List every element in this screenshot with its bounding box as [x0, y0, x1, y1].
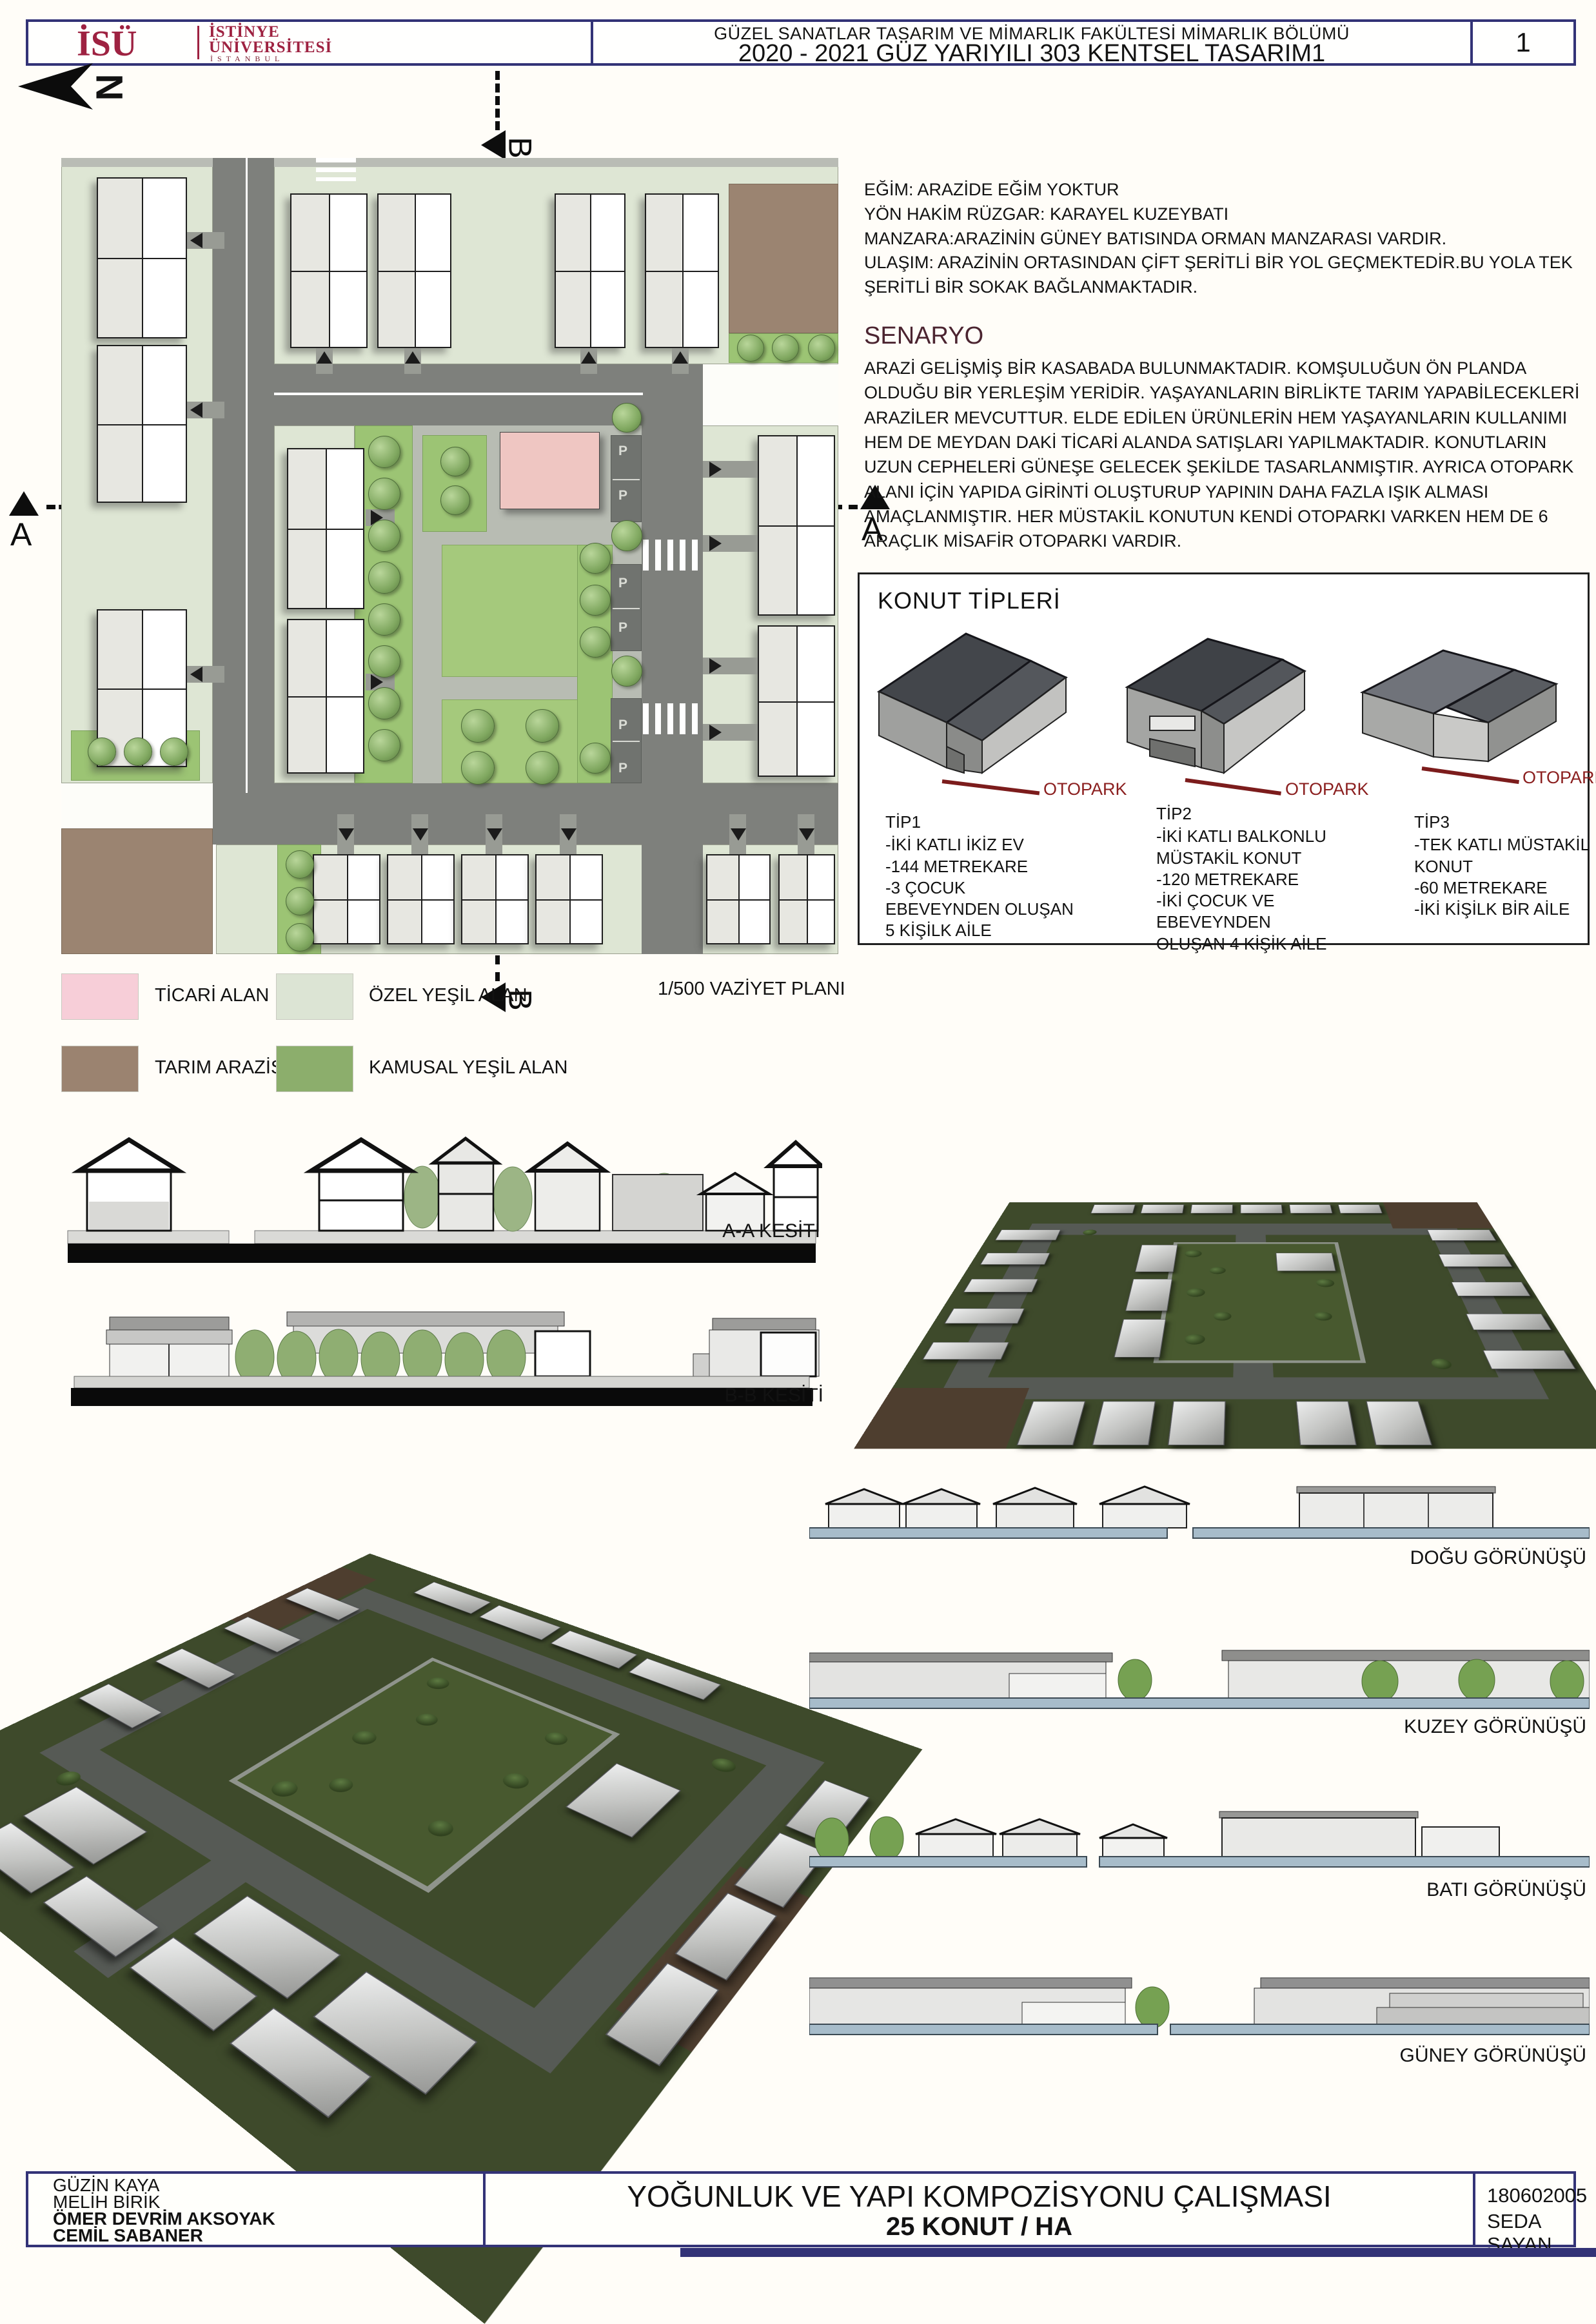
- tree-icon: [611, 656, 642, 687]
- tree-icon: [160, 737, 188, 766]
- tree-icon: [580, 585, 611, 616]
- author-name: CEMİL SABANER: [53, 2225, 203, 2246]
- driveway-arrow-icon: [673, 351, 688, 364]
- page-number: 1: [1473, 27, 1573, 58]
- tree-icon: [526, 709, 559, 743]
- tree-icon: [368, 478, 400, 510]
- section-aa-label: A-A KESİTİ: [632, 1220, 820, 1242]
- duplex-building: [97, 345, 187, 503]
- render-building: [1427, 1229, 1496, 1240]
- section-a-letter: A: [10, 516, 32, 553]
- render-building: [980, 1253, 1050, 1264]
- section-b-letter: B: [502, 137, 539, 158]
- elevation-south-label: GÜNEY GÖRÜNÜŞÜ: [1393, 2045, 1586, 2067]
- site-notes: EĞİM: ARAZİDE EĞİM YOKTUR YÖN HAKİM RÜZG…: [864, 178, 1586, 300]
- parking-letter: P: [618, 576, 627, 591]
- header-title-block: İSÜ İSTİNYE ÜNİVERSİTESİ İSTANBUL GÜZEL …: [26, 19, 1576, 66]
- duplex-building: [313, 854, 380, 944]
- render-farmland: [1383, 1202, 1493, 1228]
- duplex-building: [555, 193, 626, 348]
- render-building: [1438, 1255, 1512, 1267]
- render-building: [922, 1342, 1009, 1360]
- driveway-arrow-icon: [561, 828, 576, 841]
- render-building: [1289, 1205, 1332, 1214]
- legend-label: TİCARİ ALAN: [155, 985, 269, 1006]
- tree-icon: [808, 335, 835, 362]
- logo-city: İSTANBUL: [210, 54, 284, 64]
- project-title: YOĞUNLUK VE YAPI KOMPOZİSYONU ÇALIŞMASI: [486, 2179, 1473, 2214]
- duplex-building: [387, 854, 455, 944]
- logo-divider: [197, 26, 199, 59]
- tree-icon: [368, 436, 400, 468]
- duplex-building: [758, 435, 835, 616]
- senaryo-text: ARAZİ GELİŞMİŞ BİR KASABADA BULUNMAKTADI…: [864, 356, 1590, 554]
- driveway-arrow-icon: [581, 351, 596, 364]
- housing-types-panel: KONUT TİPLERİ OTOPARK OTOPARK OTOPARK Tİ…: [858, 572, 1590, 945]
- crosswalk: [643, 703, 702, 734]
- render-board: [854, 1202, 1596, 1449]
- tree-icon: [440, 485, 470, 515]
- housing-type3-info: TİP3 -TEK KATLI MÜSTAKİL KONUT -60 METRE…: [1414, 812, 1596, 920]
- footer-divider: [1473, 2174, 1475, 2245]
- tree-icon: [368, 687, 400, 719]
- parking-letter: P: [618, 620, 627, 636]
- house-type2-axon: [1111, 620, 1317, 774]
- duplex-building: [290, 193, 368, 348]
- elevation-north-label: KUZEY GÖRÜNÜŞÜ: [1393, 1716, 1586, 1738]
- parking-divider: [613, 741, 640, 742]
- render-building: [995, 1229, 1061, 1240]
- tree-icon: [580, 627, 611, 658]
- parking-divider: [613, 608, 640, 609]
- plan-sidewalk: [61, 158, 838, 167]
- header-titles: GÜZEL SANATLAR TASARIM VE MİMARLIK FAKÜL…: [593, 22, 1470, 63]
- driveway-arrow-icon: [190, 667, 202, 682]
- driveway-arrow-icon: [487, 828, 502, 841]
- driveway-arrow-icon: [799, 828, 814, 841]
- duplex-building: [377, 193, 451, 348]
- render-building: [1092, 1401, 1156, 1445]
- section-a-marker-icon: [9, 491, 39, 516]
- elevation-south-drawing: [809, 1955, 1590, 2042]
- tree-icon: [580, 743, 611, 774]
- commercial-building: [500, 432, 600, 509]
- driveway-arrow-icon: [405, 351, 420, 364]
- tree-icon: [286, 887, 314, 915]
- tree-icon: [440, 447, 470, 476]
- tree-icon: [737, 335, 764, 362]
- driveway-arrow-icon: [190, 233, 202, 248]
- housing-type-name: TİP2: [1156, 803, 1375, 825]
- driveway-arrow-icon: [709, 536, 722, 551]
- tree-icon: [368, 729, 400, 761]
- housing-type-name: TİP3: [1414, 812, 1596, 833]
- housing-type-lines: -İKİ KATLI BALKONLU MÜSTAKİL KONUT -120 …: [1156, 826, 1375, 955]
- legend-swatch-private-green: [276, 973, 353, 1020]
- tree-icon: [286, 923, 314, 952]
- driveway-arrow-icon: [413, 828, 428, 841]
- render-building: [1190, 1205, 1233, 1214]
- elevation-west-label: BATI GÖRÜNÜŞÜ: [1393, 1879, 1586, 1901]
- driveway-arrow-icon: [709, 658, 722, 674]
- aerial-render-southwest: [6, 1428, 800, 2140]
- elevation-east-drawing: [809, 1458, 1590, 1545]
- tree-icon: [461, 709, 495, 743]
- driveway-arrow-icon: [731, 828, 746, 841]
- render-building: [1338, 1205, 1383, 1214]
- driveway-arrow-icon: [190, 402, 202, 418]
- tree-icon: [461, 751, 495, 785]
- duplex-building: [97, 177, 187, 338]
- render-tree-icon: [1430, 1359, 1453, 1369]
- driveway-arrow-icon: [709, 462, 722, 477]
- house-type3-axon: [1350, 625, 1569, 770]
- section-b-line: [495, 955, 500, 981]
- tree-icon: [368, 561, 400, 594]
- render-building: [1135, 1245, 1178, 1272]
- section-aa-drawing: [61, 1129, 822, 1268]
- course-title: 2020 - 2021 GÜZ YARIYILI 303 KENTSEL TAS…: [593, 40, 1470, 68]
- tree-icon: [368, 603, 400, 636]
- duplex-building: [645, 193, 719, 348]
- render-building: [1296, 1401, 1357, 1445]
- render-building: [1240, 1205, 1283, 1214]
- duplex-building: [535, 854, 603, 944]
- render-building: [1483, 1351, 1575, 1369]
- render-building: [1125, 1279, 1172, 1311]
- footer-title-block: GÜZİN KAYA MELİH BİRİK ÖMER DEVRİM AKSOY…: [26, 2171, 1576, 2247]
- tree-icon: [526, 751, 559, 785]
- housing-type2-info: TİP2 -İKİ KATLI BALKONLU MÜSTAKİL KONUT …: [1156, 803, 1375, 955]
- otopark-leader-line: [942, 779, 1040, 795]
- housing-type-lines: -İKİ KATLI İKİZ EV -144 METREKARE -3 ÇOC…: [885, 834, 1098, 941]
- tree-icon: [580, 543, 611, 574]
- tree-icon: [286, 850, 314, 879]
- duplex-building: [758, 625, 835, 777]
- plan-scale-label: 1/500 VAZİYET PLANI: [658, 979, 845, 1000]
- render-building: [944, 1309, 1025, 1324]
- crosswalk: [643, 540, 702, 571]
- tree-icon: [124, 737, 152, 766]
- otopark-label: OTOPARK: [1522, 768, 1596, 788]
- tree-icon: [612, 403, 642, 433]
- render-park: [1154, 1242, 1366, 1363]
- plan-road: [213, 158, 274, 845]
- farmland-area: [61, 828, 213, 954]
- render-building: [1090, 1205, 1135, 1214]
- road-line: [246, 158, 248, 793]
- housing-type1-info: TİP1 -İKİ KATLI İKİZ EV -144 METREKARE -…: [885, 812, 1098, 942]
- parking-letter: P: [618, 761, 627, 776]
- legend-label: TARIM ARAZİSİ: [155, 1057, 288, 1079]
- render-building: [1276, 1253, 1335, 1271]
- plan-road: [642, 364, 703, 954]
- legend-label: KAMUSAL YEŞİL ALAN: [369, 1057, 567, 1079]
- section-b-line: [495, 71, 500, 130]
- parking-letter: P: [618, 488, 627, 503]
- north-letter: N: [87, 74, 130, 101]
- parking-letter: P: [618, 444, 627, 459]
- university-logo: İSÜ İSTİNYE ÜNİVERSİTESİ İSTANBUL: [28, 22, 591, 63]
- road-line: [274, 393, 643, 395]
- site-plan: PPPPPP: [61, 158, 838, 954]
- render-building: [1114, 1319, 1166, 1357]
- elevation-north-drawing: [809, 1628, 1590, 1715]
- tree-icon: [368, 645, 400, 678]
- elevation-west-drawing: [809, 1787, 1590, 1874]
- otopark-label: OTOPARK: [1043, 779, 1127, 799]
- park-lawn: [442, 545, 580, 677]
- legend-label: ÖZEL YEŞİL ALAN: [369, 985, 527, 1006]
- render-building: [1366, 1401, 1432, 1445]
- render-building: [963, 1279, 1038, 1293]
- logo-acronym: İSÜ: [77, 23, 137, 64]
- duplex-building: [461, 854, 529, 944]
- bottom-accent-bar: [680, 2248, 1596, 2257]
- crosswalk: [316, 158, 356, 181]
- section-bb-label: B-B KESİTİ: [635, 1385, 823, 1407]
- render-building: [1141, 1205, 1185, 1214]
- housing-type-lines: -TEK KATLI MÜSTAKİL KONUT -60 METREKARE …: [1414, 834, 1596, 920]
- render-building: [1451, 1282, 1530, 1296]
- render-building: [1168, 1401, 1226, 1445]
- presentation-board: { "header": { "logo": { "acronym": "İSÜ"…: [0, 0, 1596, 2257]
- north-arrow-icon: [14, 59, 98, 113]
- parking-letter: P: [618, 718, 627, 733]
- tree-icon: [772, 335, 799, 362]
- tree-icon: [368, 520, 400, 552]
- duplex-building: [287, 448, 364, 609]
- render-road: [1426, 1224, 1549, 1399]
- housing-type-name: TİP1: [885, 812, 1098, 833]
- render-farmland: [854, 1388, 1029, 1449]
- senaryo-title: SENARYO: [864, 322, 983, 350]
- driveway-arrow-icon: [317, 351, 332, 364]
- house-type1-axon: [866, 614, 1085, 776]
- driveway-arrow-icon: [709, 725, 722, 740]
- otopark-leader-line: [1185, 778, 1281, 796]
- render-building: [1466, 1314, 1552, 1330]
- legend-swatch-public-green: [276, 1046, 353, 1092]
- project-density: 25 KONUT / HA: [486, 2212, 1473, 2241]
- housing-types-title: KONUT TİPLERİ: [878, 587, 1061, 614]
- duplex-building: [706, 854, 771, 944]
- tree-icon: [88, 737, 116, 766]
- aerial-render-northeast: [896, 996, 1590, 1389]
- legend-swatch-farmland: [61, 1046, 139, 1092]
- duplex-building: [287, 619, 364, 774]
- student-id: 180602005: [1487, 2184, 1587, 2207]
- parking-divider: [613, 479, 640, 480]
- elevation-east-label: DOĞU GÖRÜNÜŞÜ: [1393, 1547, 1586, 1569]
- tree-icon: [611, 520, 642, 551]
- driveway-arrow-icon: [339, 828, 354, 841]
- farmland-area: [729, 184, 838, 333]
- otopark-label: OTOPARK: [1285, 779, 1369, 799]
- duplex-building: [778, 854, 835, 944]
- legend-swatch-commercial: [61, 973, 139, 1020]
